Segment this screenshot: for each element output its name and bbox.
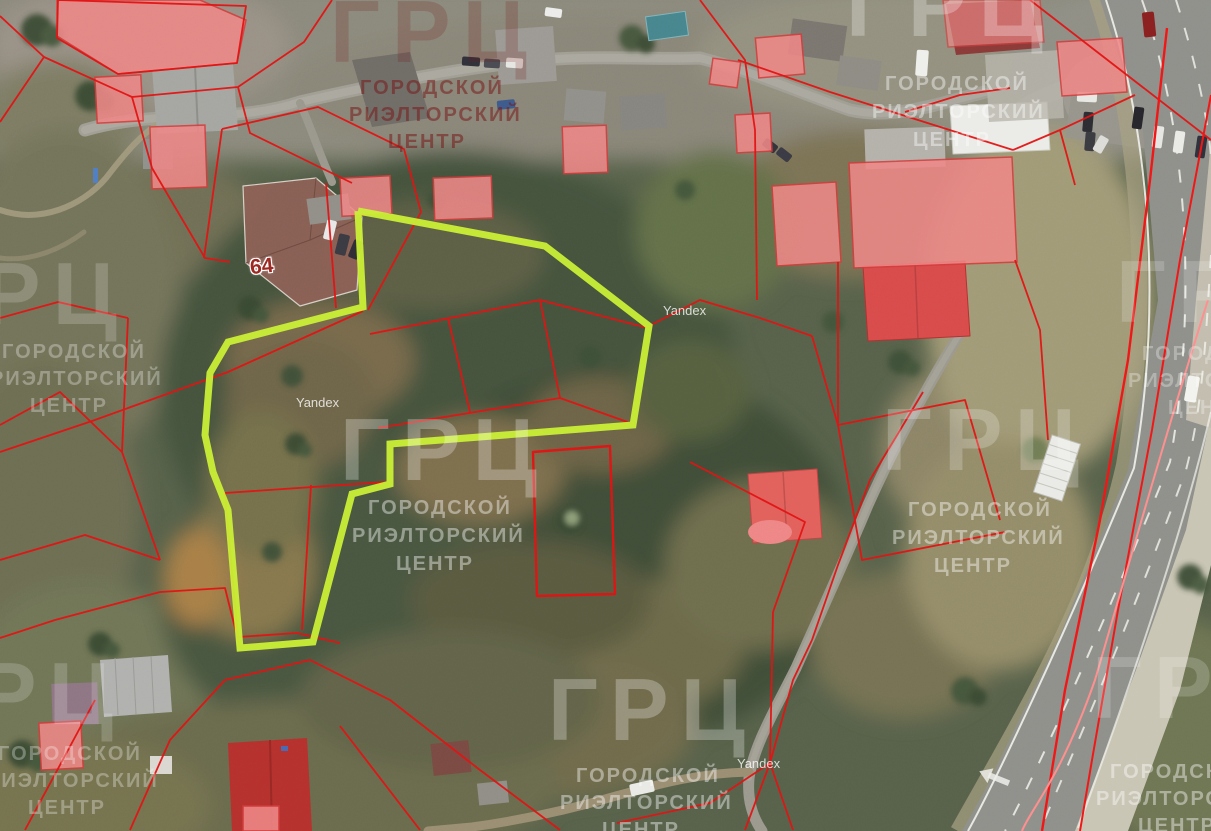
satellite-map-view[interactable]: 64 Yandex Yandex Yandex ГРЦ ГОРОДСКОЙ РИ… [0, 0, 1211, 831]
map-canvas [0, 0, 1211, 831]
photo-grain [0, 0, 1211, 831]
